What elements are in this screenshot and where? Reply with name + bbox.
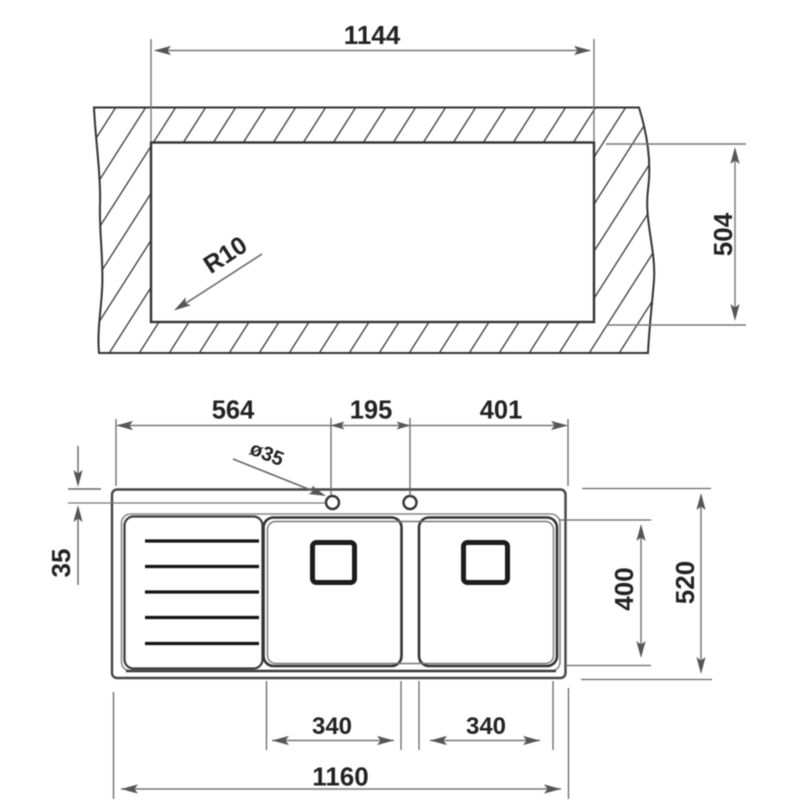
svg-text:504: 504 xyxy=(708,212,738,256)
svg-text:195: 195 xyxy=(350,397,393,425)
svg-text:340: 340 xyxy=(312,713,352,740)
svg-text:520: 520 xyxy=(670,561,700,604)
svg-text:340: 340 xyxy=(466,713,506,740)
svg-text:400: 400 xyxy=(609,567,639,610)
svg-text:564: 564 xyxy=(212,397,255,425)
svg-text:35: 35 xyxy=(46,549,76,578)
svg-text:1160: 1160 xyxy=(312,762,368,792)
svg-text:401: 401 xyxy=(480,397,523,425)
svg-text:1144: 1144 xyxy=(344,20,401,50)
